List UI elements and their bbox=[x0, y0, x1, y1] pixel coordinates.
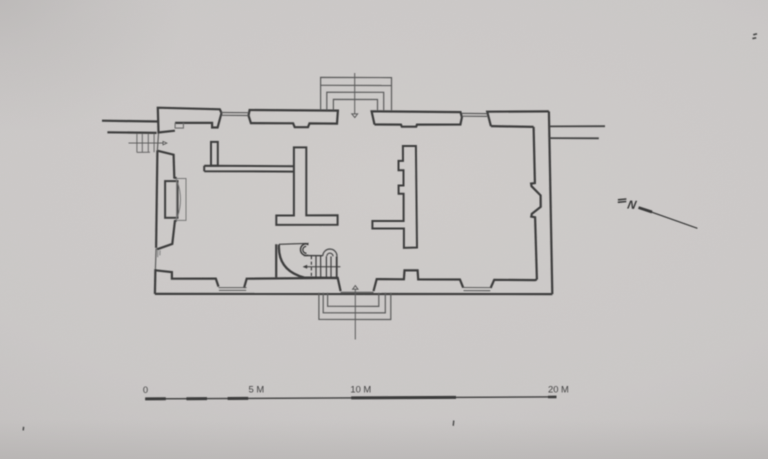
svg-text:0: 0 bbox=[143, 384, 148, 395]
svg-text:10 M: 10 M bbox=[350, 384, 371, 395]
svg-text:5 M: 5 M bbox=[249, 384, 265, 395]
svg-text:20 M: 20 M bbox=[548, 383, 569, 394]
